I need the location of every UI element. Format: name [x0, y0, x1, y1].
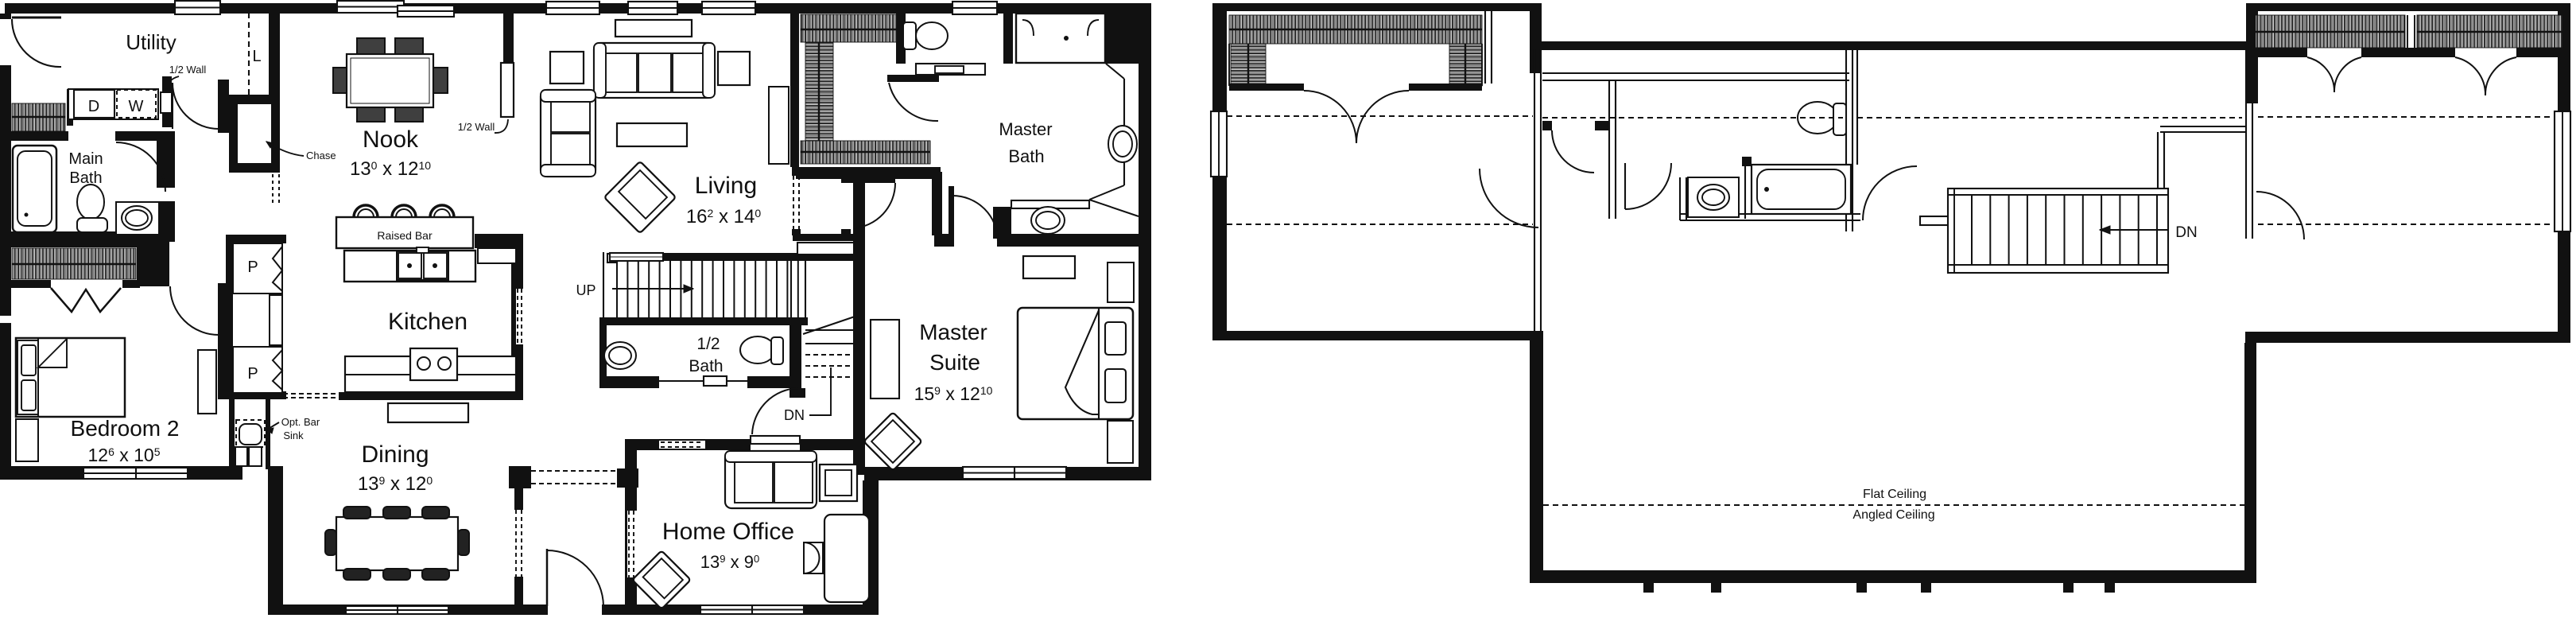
svg-text:Suite: Suite [929, 350, 980, 375]
svg-text:W: W [129, 98, 144, 115]
svg-text:1/2 Wall: 1/2 Wall [458, 121, 495, 133]
svg-text:L: L [252, 48, 261, 65]
svg-text:Angled Ceiling: Angled Ceiling [1852, 508, 1934, 522]
svg-text:Living: Living [695, 173, 757, 199]
svg-text:DN: DN [784, 407, 805, 423]
svg-text:139 x 120: 139 x 120 [358, 473, 433, 495]
svg-text:1/2 Wall: 1/2 Wall [169, 64, 207, 76]
svg-text:Master: Master [999, 119, 1052, 139]
svg-text:DN: DN [2175, 224, 2197, 241]
svg-text:Flat Ceiling: Flat Ceiling [1863, 488, 1926, 501]
svg-text:Sink: Sink [283, 430, 304, 441]
svg-text:Master: Master [919, 320, 987, 344]
svg-text:Dining: Dining [361, 441, 429, 468]
svg-text:D: D [88, 98, 99, 115]
svg-text:Opt. Bar: Opt. Bar [281, 416, 320, 428]
svg-text:Raised Bar: Raised Bar [377, 229, 433, 242]
svg-text:126 x 105: 126 x 105 [87, 445, 160, 465]
svg-text:1/2: 1/2 [696, 335, 720, 353]
svg-text:P: P [247, 365, 258, 383]
svg-text:Chase: Chase [306, 150, 336, 161]
svg-text:UP: UP [576, 282, 596, 298]
svg-text:P: P [247, 259, 258, 276]
svg-text:Main: Main [68, 150, 103, 168]
svg-text:162 x 140: 162 x 140 [686, 206, 762, 227]
svg-text:Nook: Nook [363, 126, 419, 153]
svg-text:Bath: Bath [1008, 146, 1044, 166]
svg-text:Bedroom 2: Bedroom 2 [71, 416, 180, 441]
svg-text:Utility: Utility [126, 30, 177, 54]
svg-text:139 x 90: 139 x 90 [700, 552, 759, 572]
svg-text:Kitchen: Kitchen [388, 309, 467, 335]
svg-text:Home Office: Home Office [662, 519, 794, 545]
svg-text:Bath: Bath [69, 169, 102, 187]
svg-text:Bath: Bath [689, 357, 723, 375]
